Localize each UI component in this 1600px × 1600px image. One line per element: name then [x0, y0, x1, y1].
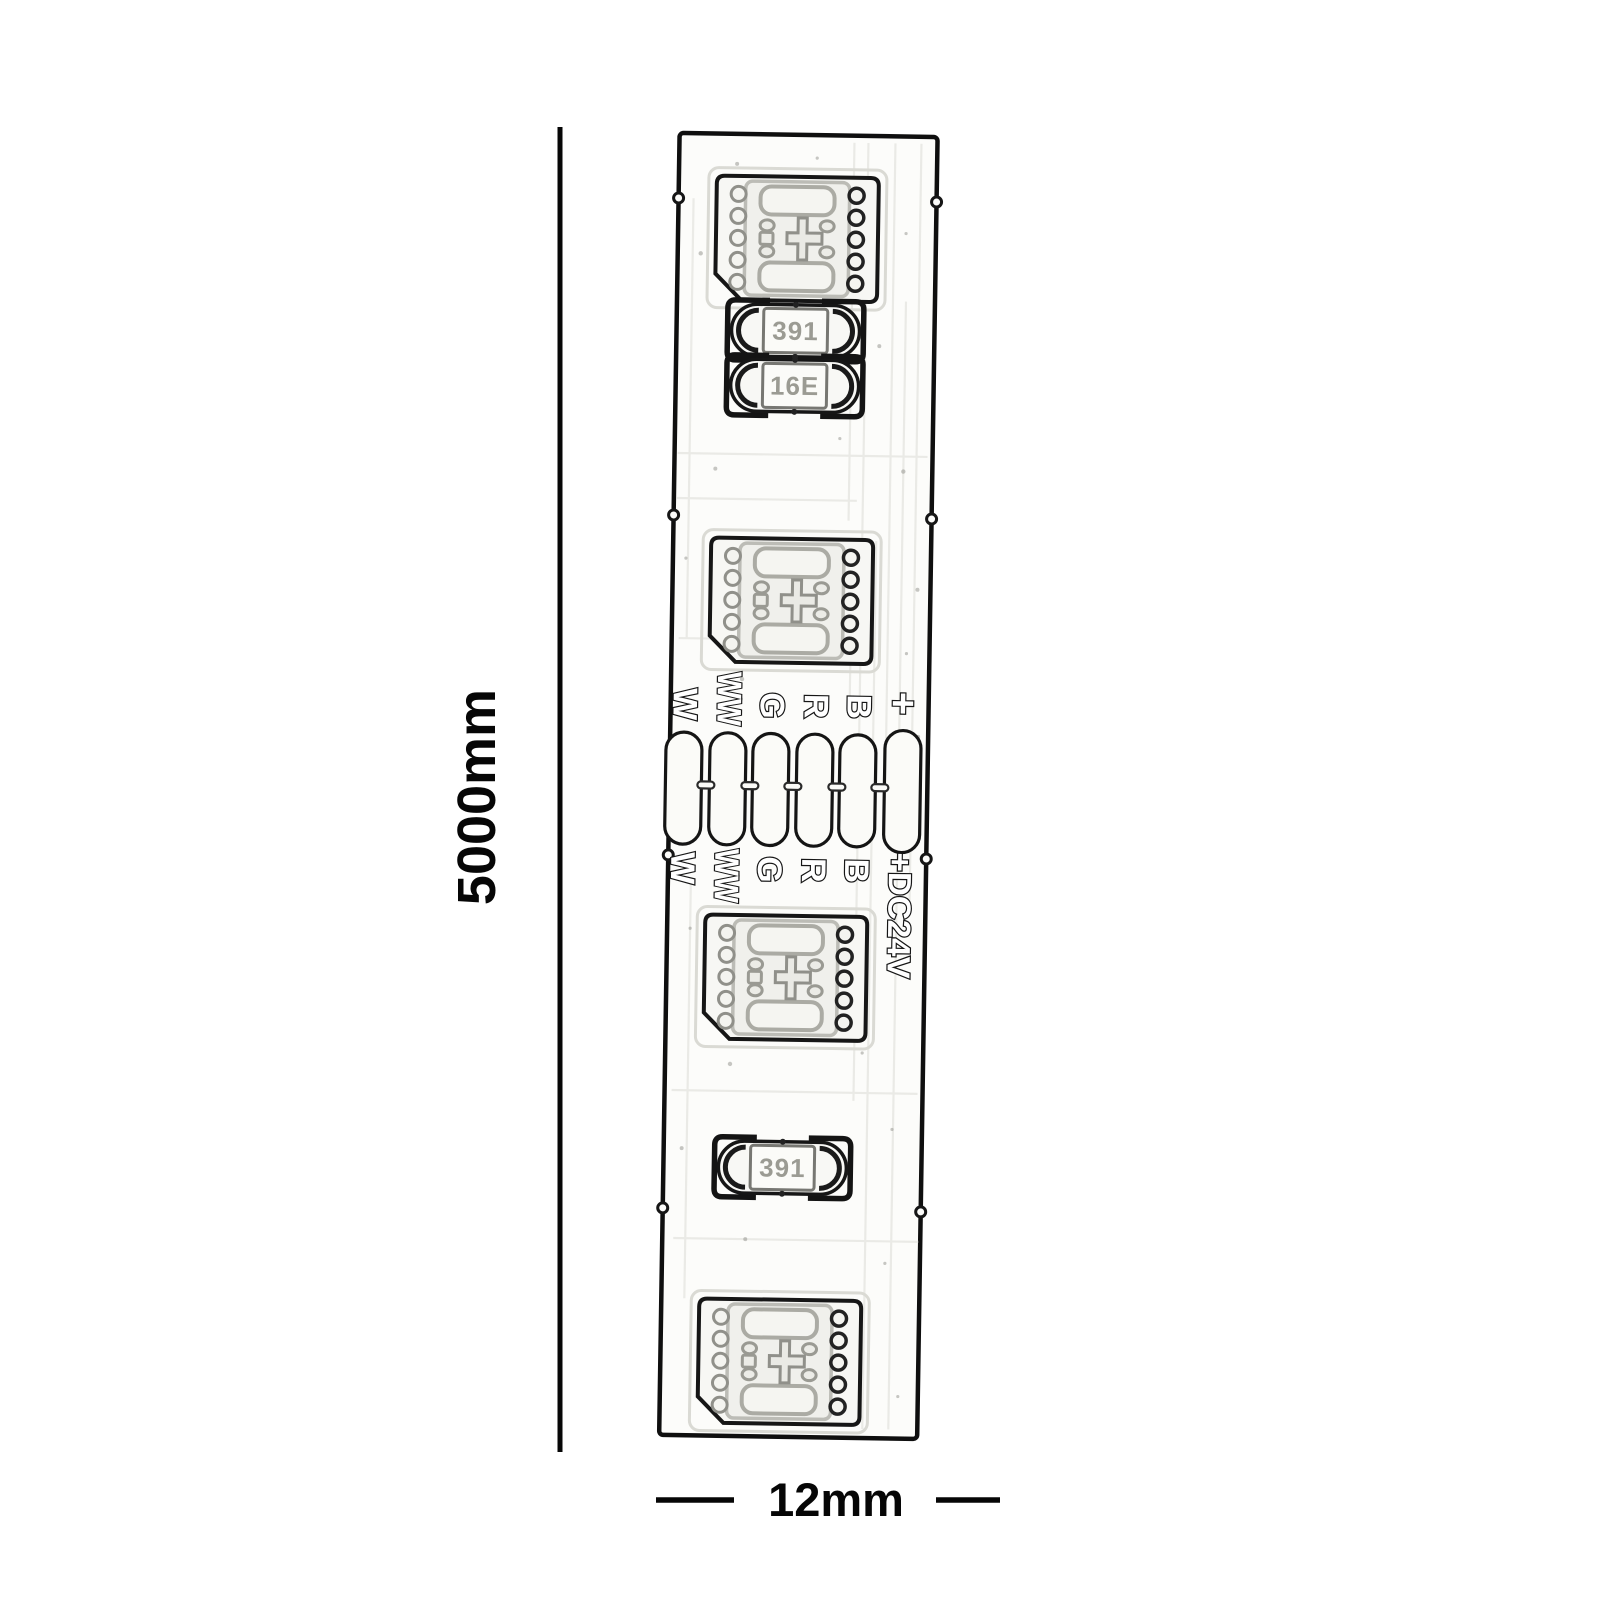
led-chip-3 [695, 906, 875, 1049]
pad-link-tick [697, 781, 714, 788]
pad-label-top-g: G [752, 692, 790, 719]
width-dimension-label: 12mm [768, 1473, 904, 1526]
pad-label-bottom-g: G [750, 856, 788, 883]
pad-label-top-plus: + [880, 692, 924, 716]
led-strip-diagram: 5000mm 12mm [0, 0, 1600, 1600]
pad-label-bottom-w: W [663, 852, 702, 886]
solder-pad-plus [883, 730, 921, 853]
resistor-16e-label: 16E [770, 370, 820, 401]
pad-label-top-ww: WW [709, 672, 748, 727]
pad-link-tick [741, 782, 758, 789]
led-chip-4 [689, 1290, 869, 1433]
pad-label-bottom-ww: WW [707, 849, 746, 904]
resistor-391-top-label: 391 [772, 315, 819, 346]
led-chip-1 [707, 167, 887, 310]
pad-label-top-b: B [839, 694, 877, 719]
pad-label-top-w: W [665, 688, 704, 722]
pad-label-top-r: R [796, 694, 834, 719]
height-dimension-label: 5000mm [447, 689, 507, 905]
pad-link-tick [828, 783, 845, 790]
led-chip-2 [701, 529, 881, 672]
pad-label-bottom-b: B [837, 858, 875, 883]
resistor-391-bottom-label: 391 [759, 1152, 806, 1183]
pad-label-dc24v: +DC24V [880, 852, 918, 979]
solder-pad-ww [708, 733, 746, 846]
pad-link-tick [784, 783, 801, 790]
diagram-canvas: 5000mm 12mm [0, 0, 1600, 1600]
resistor-assembly-top: 391 16E [726, 300, 864, 417]
resistor-assembly-bottom: 391 [714, 1137, 851, 1199]
solder-pad-r [795, 734, 833, 847]
width-dimension: 12mm [656, 1473, 1000, 1526]
solder-pad-w [664, 732, 702, 845]
pad-link-tick [871, 784, 888, 791]
led-strip: 391 16E W WW G R B + [654, 133, 942, 1439]
pad-label-bottom-r: R [794, 858, 832, 883]
